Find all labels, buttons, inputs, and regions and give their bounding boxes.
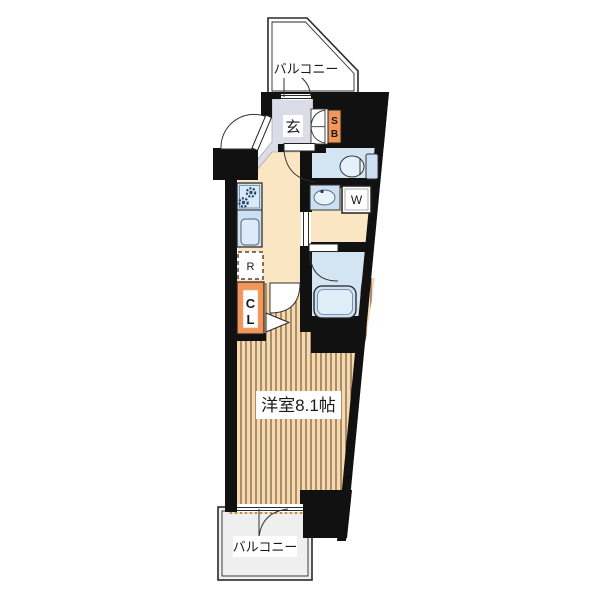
vanity-basin-icon	[314, 190, 335, 205]
toilet-tank	[366, 154, 378, 179]
shoe-box: S B	[311, 109, 341, 144]
washer-label: W	[351, 193, 363, 207]
vanity-faucet-icon	[320, 190, 323, 193]
kitchen-sink	[241, 219, 259, 245]
entry-balcony-window	[281, 94, 311, 100]
top-balcony	[268, 18, 358, 95]
bathroom	[314, 286, 356, 318]
shoe-box-label-s: S	[331, 116, 338, 127]
washroom-sliding-door	[301, 212, 311, 246]
bottom-balcony-label: バルコニー	[233, 540, 298, 555]
floorplan-svg: R C L S B W	[0, 0, 600, 600]
wall-porch-block	[213, 148, 258, 180]
shoe-box-label-b: B	[331, 129, 338, 140]
wall-below-bath	[311, 316, 359, 353]
entrance-label: 玄	[285, 119, 300, 136]
toilet	[340, 154, 378, 179]
closet: C L	[237, 282, 264, 334]
kitchen	[237, 183, 262, 247]
floorplan-canvas: R C L S B W	[0, 0, 600, 600]
wall-entry-step	[278, 144, 284, 152]
closet-label-c: C	[246, 296, 256, 311]
hall-door-leaf	[284, 144, 315, 152]
wall-left-side	[225, 178, 237, 512]
top-balcony-label: バルコニー	[274, 62, 339, 77]
fridge-label: R	[247, 261, 255, 273]
bath-door-leaf	[309, 244, 338, 252]
refrigerator-space: R	[238, 252, 263, 279]
closet-label-l: L	[247, 312, 255, 327]
washroom: W	[310, 185, 371, 213]
main-room-label: 洋室8.1帖	[261, 396, 336, 415]
bathtub-inner	[318, 290, 353, 315]
